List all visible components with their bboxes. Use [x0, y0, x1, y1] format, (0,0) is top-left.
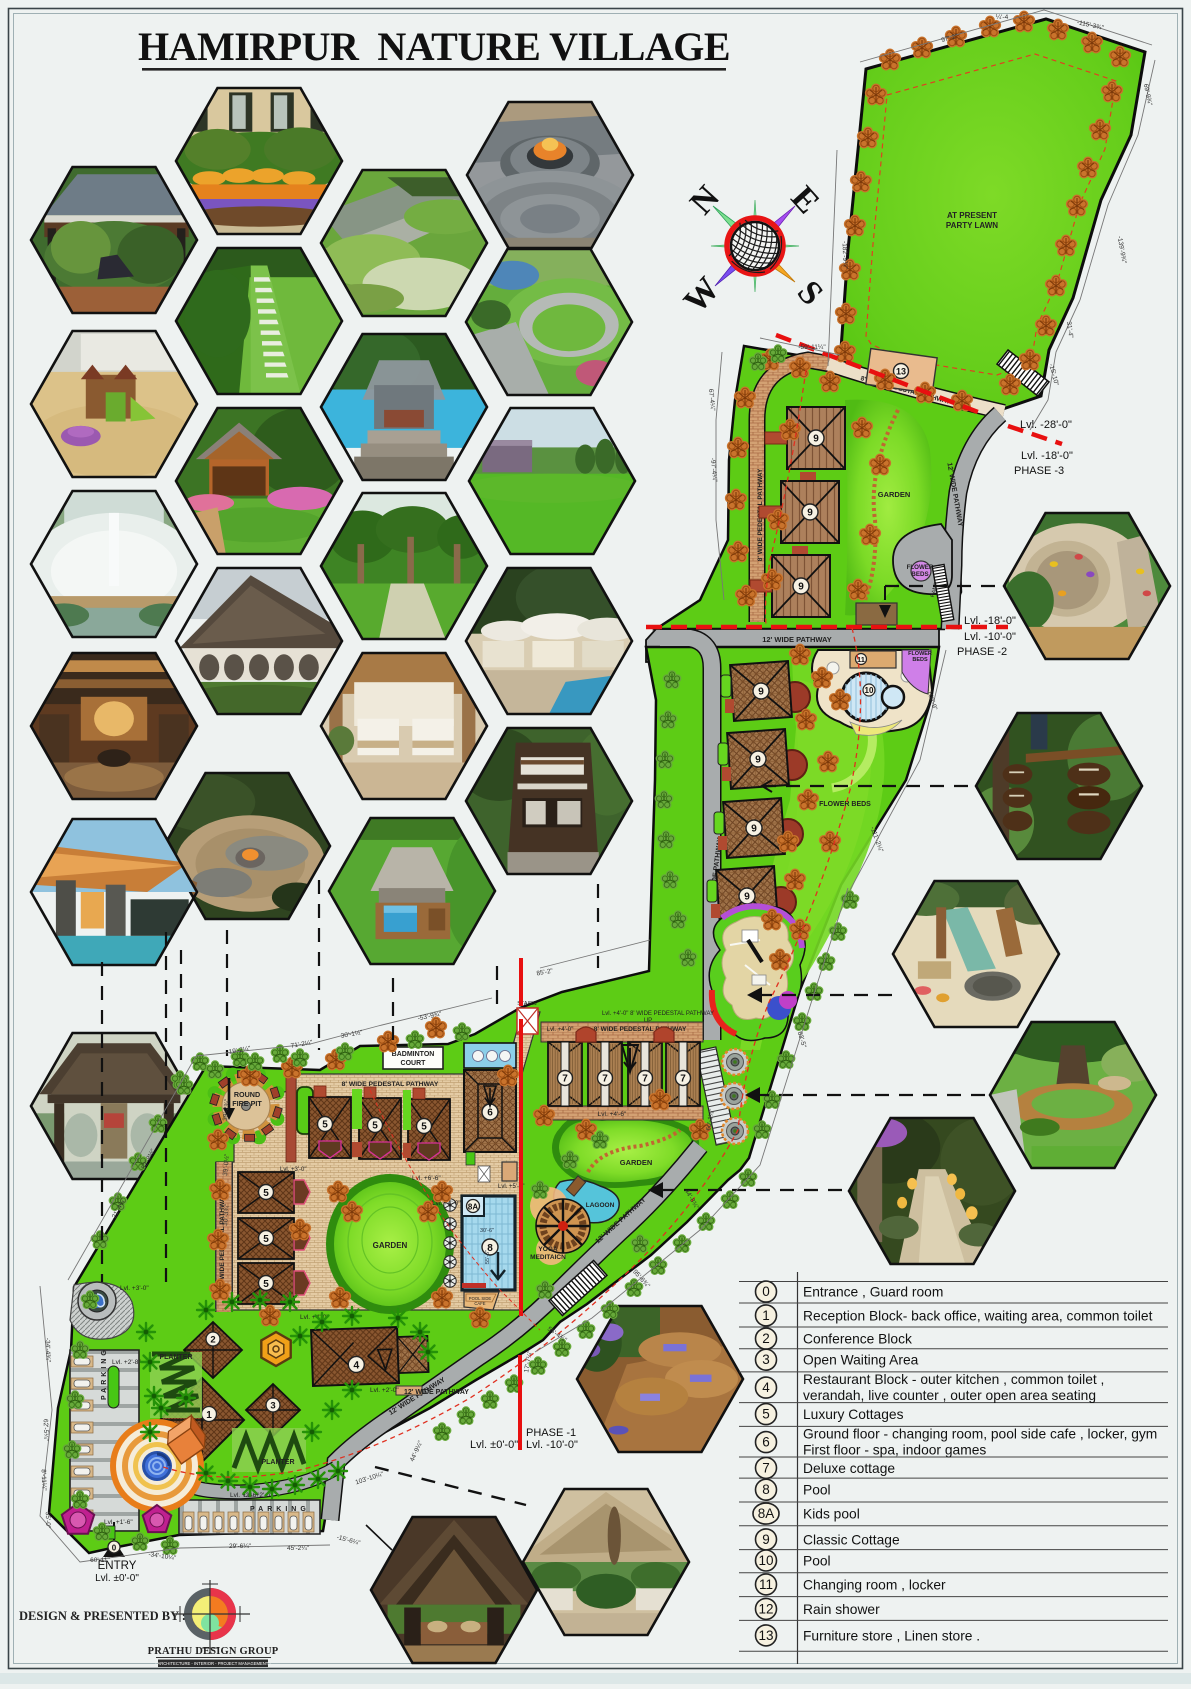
svg-text:-182'-9¾": -182'-9¾": [841, 241, 849, 270]
svg-text:62'-5¼": 62'-5¼": [42, 1419, 50, 1442]
svg-text:PARKING: PARKING: [101, 1347, 108, 1400]
svg-text:HAMIRPUR NATURE VILLAGE: HAMIRPUR NATURE VILLAGE: [138, 24, 730, 69]
svg-text:1: 1: [206, 1410, 212, 1421]
svg-text:103'-10¼": 103'-10¼": [355, 1471, 386, 1487]
svg-text:E: E: [784, 179, 827, 221]
svg-text:10: 10: [758, 1553, 773, 1568]
svg-text:Furniture store , Linen store: Furniture store , Linen store .: [803, 1628, 980, 1643]
svg-text:6: 6: [762, 1435, 770, 1450]
svg-text:5: 5: [263, 1188, 269, 1199]
svg-text:Entrance , Guard room: Entrance , Guard room: [803, 1285, 943, 1300]
svg-text:8: 8: [762, 1482, 770, 1497]
svg-text:Pool: Pool: [803, 1554, 831, 1569]
svg-text:PARKING: PARKING: [250, 1506, 310, 1513]
svg-text:Lvl. ±0'-0": Lvl. ±0'-0": [95, 1573, 139, 1584]
svg-text:Open Waiting Area: Open Waiting Area: [803, 1353, 919, 1368]
svg-text:8'-11¼": 8'-11¼": [40, 1469, 48, 1491]
svg-text:67'-4¼": 67'-4¼": [707, 389, 716, 412]
svg-text:First floor - spa, indoor game: First floor - spa, indoor games: [803, 1443, 986, 1458]
svg-text:Lvl. ±0'-0": Lvl. ±0'-0": [470, 1439, 518, 1451]
svg-text:FIRE PIT: FIRE PIT: [232, 1099, 262, 1108]
svg-text:10: 10: [865, 686, 874, 695]
svg-text:11: 11: [857, 655, 865, 664]
svg-text:2: 2: [210, 1335, 215, 1346]
svg-text:8A: 8A: [468, 1203, 478, 1212]
svg-text:55'-6": 55'-6": [485, 1250, 491, 1264]
svg-text:31'-4": 31'-4": [1065, 321, 1074, 339]
svg-text:PHASE -2: PHASE -2: [957, 646, 1007, 658]
svg-text:Reception Block- back office,: Reception Block- back office, waiting ar…: [803, 1308, 1153, 1323]
svg-text:Conference Block: Conference Block: [803, 1332, 912, 1347]
svg-text:69'-9¾": 69'-9¾": [1142, 83, 1154, 107]
svg-text:¼'-4: ¼'-4: [996, 14, 1009, 21]
svg-text:AT PRESENT: AT PRESENT: [947, 211, 997, 220]
svg-text:- ARCHITECTURE - INTERIOR - PR: - ARCHITECTURE - INTERIOR - PROJECT MANA…: [155, 1661, 271, 1666]
svg-text:Restaurant Block - outer kitch: Restaurant Block - outer kitchen , commo…: [803, 1372, 1104, 1387]
svg-text:PHASE -1: PHASE -1: [526, 1427, 576, 1439]
svg-text:W: W: [677, 270, 727, 320]
svg-text:1: 1: [762, 1308, 770, 1323]
svg-text:-15'-6¼": -15'-6¼": [336, 1534, 362, 1547]
svg-text:5: 5: [263, 1279, 269, 1290]
svg-text:Rain shower: Rain shower: [803, 1602, 880, 1617]
svg-text:Lvl. -10'-0": Lvl. -10'-0": [964, 631, 1016, 643]
svg-text:2: 2: [762, 1331, 770, 1346]
svg-text:YOGA: YOGA: [538, 1246, 557, 1253]
svg-text:UP: UP: [644, 1018, 652, 1024]
svg-text:4: 4: [762, 1380, 770, 1395]
svg-text:Lvl. +2'-0": Lvl. +2'-0": [370, 1387, 399, 1394]
svg-text:11: 11: [759, 1577, 773, 1592]
svg-text:PLANTER: PLANTER: [159, 1354, 192, 1361]
svg-text:CAFE: CAFE: [474, 1301, 485, 1306]
svg-text:Ground floor - changing room,: Ground floor - changing room, pool side …: [803, 1427, 1157, 1442]
svg-text:-15'-10": -15'-10": [1047, 363, 1060, 387]
svg-text:Lvl. +4'-6": Lvl. +4'-6": [598, 1111, 627, 1118]
svg-text:3: 3: [270, 1401, 275, 1412]
svg-text:BEDS: BEDS: [912, 657, 928, 663]
svg-text:29'-6¼": 29'-6¼": [229, 1543, 252, 1550]
svg-text:9: 9: [807, 508, 813, 519]
svg-text:PHASE -3: PHASE -3: [1014, 465, 1064, 477]
svg-text:Lvl. +2'-8": Lvl. +2'-8": [112, 1359, 141, 1366]
svg-text:5: 5: [762, 1407, 770, 1422]
svg-text:7: 7: [642, 1074, 648, 1085]
svg-text:BADMINTON: BADMINTON: [392, 1051, 435, 1058]
svg-text:BEDS: BEDS: [911, 571, 928, 578]
svg-text:PRATHU DESIGN GROUP: PRATHU DESIGN GROUP: [148, 1646, 279, 1657]
svg-text:9: 9: [798, 582, 804, 593]
svg-text:7: 7: [562, 1074, 568, 1085]
svg-text:7: 7: [602, 1074, 608, 1085]
svg-text:Lvl. +4'-0" 8' WIDE PEDESTAL: Lvl. +4'-0" 8' WIDE PEDESTAL PATHWAY: [602, 1011, 714, 1017]
svg-text:GARDEN: GARDEN: [373, 1241, 408, 1250]
svg-text:Lvl. -10'-0": Lvl. -10'-0": [526, 1439, 578, 1451]
svg-text:Pool: Pool: [803, 1483, 831, 1498]
svg-text:Lvl. -28'-0": Lvl. -28'-0": [1020, 419, 1072, 431]
svg-text:-139'-9¾": -139'-9¾": [1116, 235, 1128, 264]
svg-text:S: S: [790, 274, 830, 313]
svg-text:4: 4: [353, 1359, 359, 1371]
svg-text:ROUND: ROUND: [234, 1090, 260, 1099]
svg-text:Lvl. +6'-6": Lvl. +6'-6": [412, 1175, 441, 1182]
svg-text:5: 5: [421, 1122, 427, 1133]
svg-text:Lvl. -18'-0": Lvl. -18'-0": [964, 615, 1016, 627]
svg-text:FLOWER: FLOWER: [907, 564, 934, 571]
svg-text:PLANTER: PLANTER: [261, 1459, 294, 1466]
svg-text:5: 5: [322, 1120, 328, 1131]
svg-text:30'-6": 30'-6": [480, 1228, 494, 1234]
svg-text:0: 0: [112, 1544, 117, 1553]
svg-text:45'-2¼": 45'-2¼": [287, 1545, 310, 1552]
svg-text:PARTY LAWN: PARTY LAWN: [946, 221, 998, 230]
svg-text:5: 5: [372, 1121, 378, 1132]
svg-text:60'-11": 60'-11": [90, 1557, 110, 1564]
svg-text:30'-1½": 30'-1½": [340, 1028, 364, 1040]
svg-text:9: 9: [762, 1532, 770, 1547]
svg-text:Lvl. +1'-6": Lvl. +1'-6": [104, 1519, 133, 1526]
svg-text:Deluxe cottage: Deluxe cottage: [803, 1461, 895, 1476]
svg-text:Luxury Cottages: Luxury Cottages: [803, 1407, 904, 1422]
svg-text:3: 3: [762, 1352, 770, 1367]
svg-text:71'-2¼": 71'-2¼": [290, 1039, 314, 1050]
svg-text:7: 7: [680, 1074, 686, 1085]
svg-text:GARDEN: GARDEN: [878, 490, 911, 499]
svg-text:verandah, live counter , outer: verandah, live counter , outer open area…: [803, 1388, 1096, 1403]
svg-text:5: 5: [263, 1234, 269, 1245]
svg-text:12' WIDE PATHWAY: 12' WIDE PATHWAY: [762, 635, 832, 644]
svg-text:GARDEN: GARDEN: [620, 1158, 653, 1167]
svg-text:8A: 8A: [758, 1506, 775, 1521]
svg-text:Kids pool: Kids pool: [803, 1507, 860, 1522]
svg-text:12: 12: [758, 1601, 773, 1616]
svg-text:13: 13: [758, 1628, 773, 1643]
svg-text:Lvl. -18'-0": Lvl. -18'-0": [1021, 450, 1073, 462]
svg-text:COURT: COURT: [401, 1060, 427, 1067]
svg-text:13: 13: [896, 367, 906, 377]
svg-text:8' WIDE PEDESTAL PATHWAY: 8' WIDE PEDESTAL PATHWAY: [342, 1081, 439, 1088]
svg-text:7: 7: [762, 1460, 770, 1475]
svg-text:-97'-4¼": -97'-4¼": [709, 458, 718, 483]
svg-text:-59'-11¼": -59'-11¼": [798, 344, 826, 351]
svg-text:Changing room , locker: Changing room , locker: [803, 1577, 946, 1592]
svg-text:6: 6: [487, 1108, 493, 1119]
svg-text:55'-0": 55'-0": [44, 1512, 52, 1529]
svg-text:85'-2": 85'-2": [536, 968, 554, 978]
svg-text:44'-9¼": 44'-9¼": [409, 1439, 425, 1463]
svg-text:Lvl. +3'-0": Lvl. +3'-0": [120, 1285, 149, 1292]
svg-text:Lvl. +4'-0": Lvl. +4'-0": [547, 1027, 573, 1033]
svg-text:0: 0: [762, 1284, 770, 1299]
svg-text:9: 9: [813, 434, 819, 445]
svg-text:MEDITAICN: MEDITAICN: [530, 1254, 566, 1261]
svg-text:12' WIDE PATHWAY: 12' WIDE PATHWAY: [404, 1389, 469, 1396]
svg-text:LAGOON: LAGOON: [586, 1202, 615, 1209]
svg-text:DESIGN & PRESENTED BY :-: DESIGN & PRESENTED BY :-: [19, 1609, 190, 1623]
svg-text:Classic Cottage: Classic Cottage: [803, 1532, 900, 1547]
svg-text:-34'-4¾": -34'-4¾": [44, 1338, 52, 1363]
